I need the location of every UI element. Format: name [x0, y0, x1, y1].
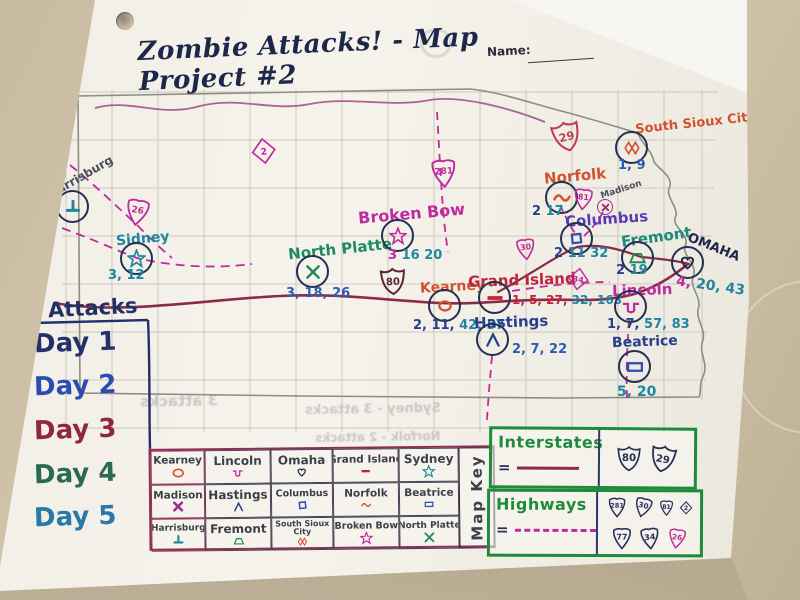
highways-legend-box: Highways = 281 30 81 2 77 34 26: [487, 489, 703, 558]
circle-o-icon: [170, 466, 185, 479]
key-city-name: Hastings: [208, 489, 268, 502]
attack-days: 4,: [675, 273, 692, 291]
key-city-name: Broken Bow: [334, 521, 398, 531]
perpendicular-icon: [171, 533, 185, 546]
highway-81-shield: 81: [569, 185, 596, 217]
svg-text:80: 80: [622, 452, 636, 464]
key-cell-omaha: Omaha: [270, 449, 332, 484]
attack-days: 2: [554, 246, 563, 261]
svg-text:29: 29: [655, 453, 671, 466]
highway-dashed-hastings: [487, 356, 492, 420]
caret-icon: [231, 501, 246, 513]
double-diamond-icon: [295, 537, 309, 548]
highway-shield-samples: 281 30 81 2 77 34 26: [596, 492, 700, 554]
key-cell-hastings: Hastings: [205, 484, 271, 519]
highway-281-shield: 281: [427, 155, 462, 195]
key-city-name: Kearney: [153, 456, 202, 467]
day-1-label: Day 1: [34, 327, 117, 360]
attack-days: 2, 7, 22: [512, 342, 567, 357]
circle-o-icon: [436, 297, 454, 315]
highway-dashed-line-sample: [515, 528, 596, 531]
attack-days: 1, 5, 27,: [512, 293, 567, 307]
x-cross-icon: [422, 530, 436, 543]
day-5-label: Day 5: [34, 501, 117, 534]
key-cell-kearney: Kearney: [150, 450, 204, 485]
key-city-name: Norfolk: [344, 489, 388, 500]
highway-2-road: [95, 99, 545, 122]
key-city-name: Grand Island: [332, 454, 398, 465]
square-icon: [568, 230, 585, 247]
bar-icon: [485, 288, 505, 308]
key-city-name: Fremont: [210, 522, 267, 535]
attack-days: 3, 12: [108, 268, 145, 283]
key-city-name: Columbus: [276, 489, 329, 499]
double-diamond-icon: [623, 139, 641, 157]
svg-text:2: 2: [683, 505, 687, 512]
highway-2-legend-shield: 2: [679, 498, 693, 517]
attack-days: 2: [616, 263, 625, 278]
svg-text:26: 26: [671, 532, 682, 542]
key-cell-norfolk: Norfolk: [333, 482, 399, 517]
svg-text:81: 81: [662, 503, 671, 510]
interstate-80-shield: 80: [377, 263, 409, 303]
svg-text:81: 81: [577, 192, 589, 202]
key-cell-harrisburg: Harrisburg: [151, 518, 205, 552]
interstates-label: Interstates: [498, 432, 603, 452]
svg-text:34: 34: [644, 532, 656, 542]
highway-30-shield: 30: [512, 235, 539, 267]
heart-icon: [678, 253, 697, 272]
svg-text:30: 30: [520, 242, 532, 252]
highway-26-legend-shield: 26: [664, 525, 689, 552]
svg-text:2: 2: [260, 146, 268, 158]
key-city-name: Sydney: [404, 452, 454, 465]
city-symbol-circle: [476, 323, 509, 356]
svg-text:80: 80: [386, 277, 401, 289]
wave-icon: [357, 499, 375, 510]
attack-days: 57, 83: [644, 317, 690, 332]
interstate-line-sample: [516, 466, 578, 469]
equals-sign: =: [498, 458, 511, 476]
key-city-name: North Platte: [399, 521, 459, 531]
attack-days: 3, 18, 26: [286, 286, 350, 301]
key-cell-madison: Madison: [151, 484, 205, 519]
trapezoid-icon: [230, 534, 247, 546]
worksheet-paper: 3 attacks Sydney - 3 attacks Norfolk - 2…: [0, 0, 800, 600]
key-cell-broken-bow: Broken Bow: [333, 516, 399, 550]
key-cell-lincoln: Lincoln: [204, 450, 270, 485]
city-symbol-circle: [478, 281, 511, 314]
bar-icon: [358, 465, 374, 476]
key-cell-grand-island: Grand Island: [332, 448, 398, 483]
city-symbol-circle: [56, 190, 89, 223]
star-icon: [422, 464, 436, 477]
highway-281-legend-shield: 281: [606, 495, 628, 519]
perpendicular-icon: [64, 198, 82, 216]
day-2-label: Day 2: [34, 370, 117, 403]
svg-text:77: 77: [616, 533, 627, 542]
svg-text:26: 26: [130, 205, 144, 217]
svg-text:281: 281: [610, 502, 624, 510]
key-city-name: Omaha: [278, 454, 326, 466]
city-symbol-circle: [618, 350, 651, 383]
interstates-legend-box: Interstates = 80 29: [489, 426, 697, 489]
attack-days: 11 32: [568, 246, 609, 261]
interstates-legend-label-area: Interstates =: [492, 429, 598, 486]
day-3-label: Day 3: [34, 414, 117, 447]
highways-label: Highways: [496, 495, 587, 514]
attack-days: 3: [388, 248, 397, 263]
city-label: Beatrice: [612, 333, 678, 351]
heart-icon: [295, 466, 309, 478]
key-cell-beatrice: Beatrice: [399, 482, 459, 517]
highway-34-legend-shield: 34: [637, 524, 664, 552]
highway-77-legend-shield: 77: [610, 525, 634, 551]
interstate-shield-samples: 80 29: [598, 430, 694, 487]
name-label: Name:: [487, 43, 531, 59]
attack-days: 1, 7,: [607, 317, 640, 332]
interstate-80-legend-shield: 80: [615, 441, 643, 475]
highway-26-shield: 26: [119, 194, 155, 235]
city-symbol-circle: [296, 255, 329, 288]
key-city-name: Harrisburg: [151, 524, 205, 534]
bold-x-icon: [172, 501, 184, 513]
attacks-header: Attacks: [47, 294, 138, 323]
key-cell-fremont: Fremont: [205, 518, 271, 552]
key-city-name: South Sioux City: [272, 520, 332, 537]
key-cell-sydney: Sydney: [398, 448, 458, 483]
highway-81-legend-shield: 81: [658, 497, 675, 518]
map-key-table: Kearney Lincoln Omaha Grand Island Sydne…: [148, 445, 495, 551]
square-icon: [296, 499, 309, 511]
caret-icon: [484, 331, 502, 349]
key-city-name: Beatrice: [404, 488, 453, 499]
interstate-29-legend-shield: 29: [644, 440, 681, 477]
square-wave-icon: [229, 467, 247, 479]
key-city-name: Madison: [153, 490, 203, 501]
key-city-name: Lincoln: [213, 455, 261, 468]
attack-days: 1, 9: [618, 158, 646, 173]
svg-text:34: 34: [572, 274, 585, 285]
rectangle-icon: [625, 357, 645, 377]
photo-of-map-worksheet: 3 attacks Sydney - 3 attacks Norfolk - 2…: [0, 0, 800, 600]
attack-days: 19: [630, 263, 648, 278]
svg-text:30: 30: [637, 500, 649, 511]
highway-2-shield: 2: [248, 134, 280, 172]
attack-days: 17: [546, 204, 564, 219]
star-icon: [127, 249, 146, 268]
svg-text:29: 29: [558, 129, 577, 145]
map-key-vertical-label: Map Key: [468, 455, 487, 542]
star-icon: [359, 531, 373, 544]
key-cell-south-sioux-city: South Sioux City: [271, 517, 333, 551]
attack-days: 16 20: [402, 248, 443, 263]
highway-34-shield: 34: [564, 264, 592, 297]
highway-30-legend-shield: 30: [629, 493, 656, 522]
equals-sign: =: [496, 521, 509, 539]
key-cell-north-platte: North Platte: [399, 516, 459, 550]
attack-days: 2: [532, 204, 541, 219]
hole-punch: [116, 12, 134, 30]
highways-legend-label-area: Highways =: [490, 492, 596, 554]
svg-text:281: 281: [434, 166, 453, 177]
key-cell-columbus: Columbus: [271, 483, 333, 518]
x-cross-icon: [304, 263, 322, 281]
star-icon: [389, 227, 407, 245]
attack-days: 5, 20: [617, 384, 656, 400]
square-wave-icon: [621, 297, 641, 317]
rectangle-icon: [420, 499, 438, 510]
attack-days: 2, 11,: [413, 318, 455, 333]
day-4-label: Day 4: [34, 458, 117, 491]
